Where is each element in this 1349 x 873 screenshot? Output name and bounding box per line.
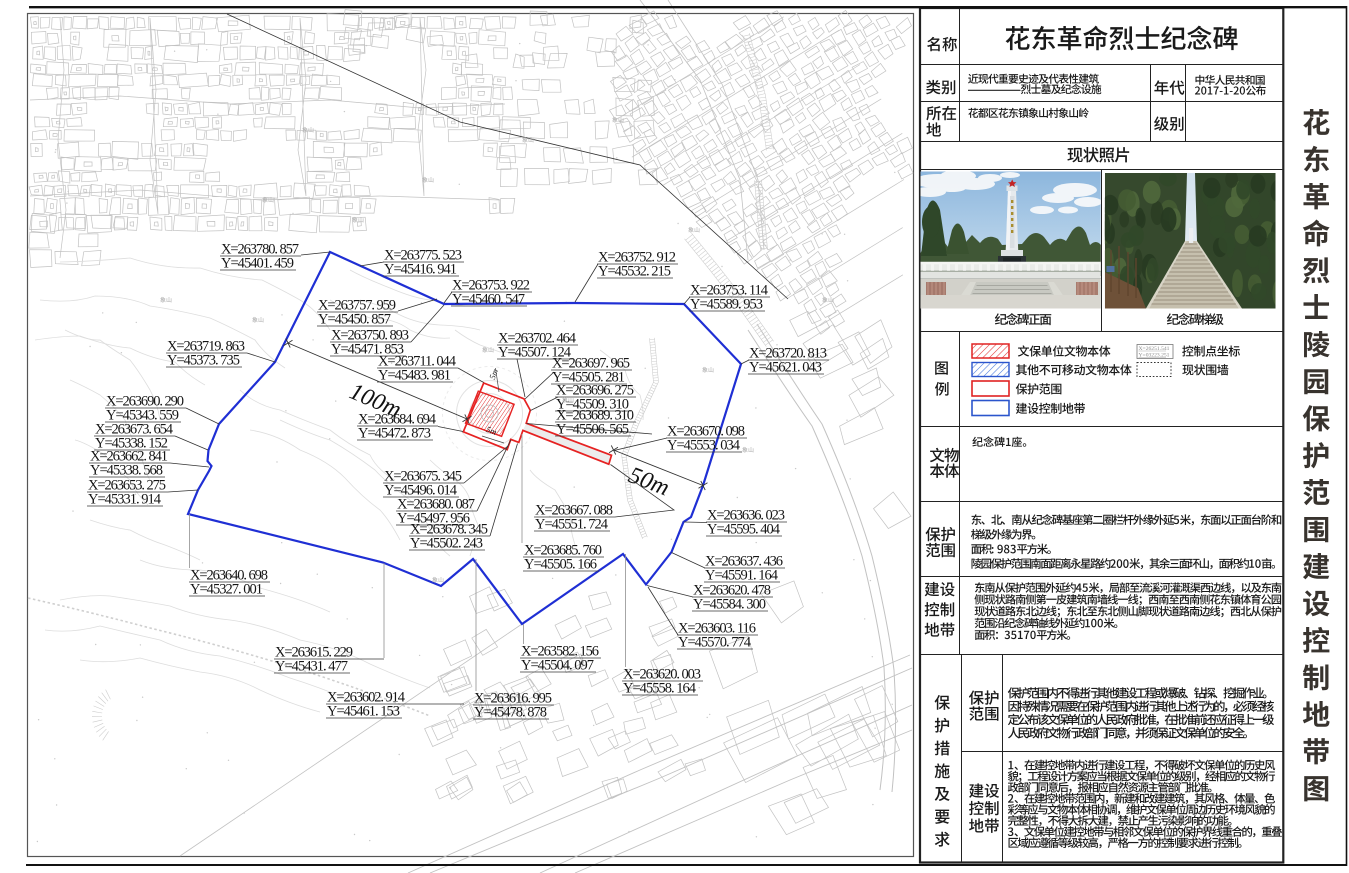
svg-text:Y=45558. 164: Y=45558. 164: [623, 681, 697, 697]
svg-text:Y=45401. 459: Y=45401. 459: [221, 256, 294, 272]
svg-text:Y=45506. 565: Y=45506. 565: [556, 422, 629, 438]
svg-text:Y=45591. 164: Y=45591. 164: [705, 568, 779, 584]
svg-text:Y=45505. 166: Y=45505. 166: [524, 557, 597, 573]
svg-text:Y=45450. 857: Y=45450. 857: [318, 312, 391, 328]
svg-text:Y=45472. 873: Y=45472. 873: [358, 426, 431, 442]
svg-text:Y=45621. 043: Y=45621. 043: [749, 360, 822, 376]
svg-text:Y=45483. 981: Y=45483. 981: [378, 368, 451, 384]
svg-text:Y=45504. 097: Y=45504. 097: [521, 658, 594, 674]
svg-text:Y=45460. 547: Y=45460. 547: [452, 292, 525, 308]
svg-text:Y=45373. 735: Y=45373. 735: [167, 353, 240, 369]
svg-text:Y=45584. 300: Y=45584. 300: [693, 597, 766, 613]
svg-text:Y=45502. 243: Y=45502. 243: [410, 536, 483, 552]
svg-text:Y=45570. 774: Y=45570. 774: [678, 635, 752, 651]
svg-text:Y=45338. 568: Y=45338. 568: [90, 463, 163, 479]
svg-text:Y=45532. 215: Y=45532. 215: [598, 264, 671, 280]
svg-text:Y=45416. 941: Y=45416. 941: [384, 262, 457, 278]
svg-text:Y=45461. 153: Y=45461. 153: [327, 704, 400, 720]
svg-text:Y=45478. 878: Y=45478. 878: [474, 705, 547, 721]
svg-text:Y=45431. 477: Y=45431. 477: [275, 659, 348, 675]
svg-text:Y=45589. 953: Y=45589. 953: [690, 297, 763, 313]
svg-text:Y=45327. 001: Y=45327. 001: [190, 582, 263, 598]
svg-text:Y=45595. 404: Y=45595. 404: [707, 522, 781, 538]
svg-text:Y=45551. 724: Y=45551. 724: [535, 517, 609, 533]
svg-text:Y=45553. 034: Y=45553. 034: [667, 438, 741, 454]
svg-text:Y=45331. 914: Y=45331. 914: [88, 492, 162, 508]
